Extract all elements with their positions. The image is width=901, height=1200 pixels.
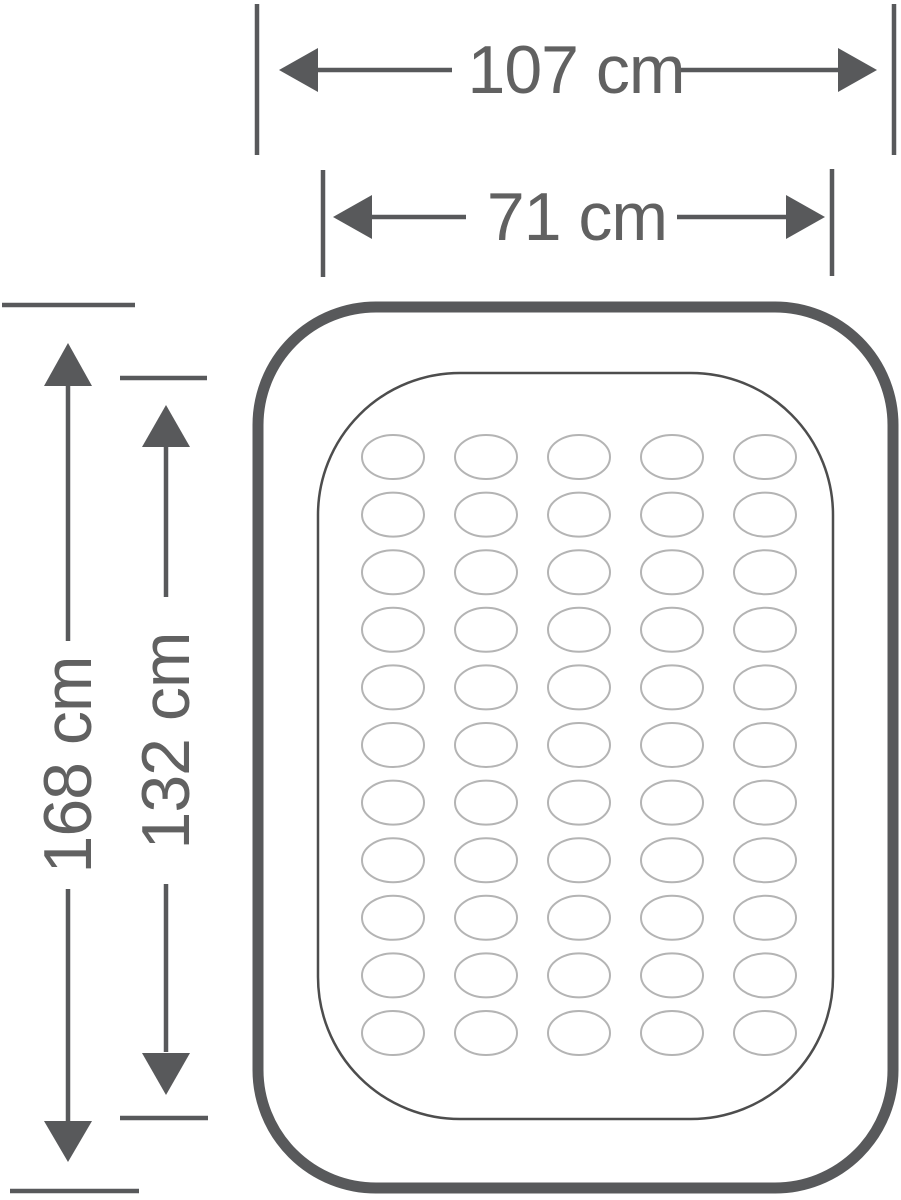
inner-width-dimension: 71 cm <box>323 169 832 277</box>
down-arrowhead-icon <box>44 1121 92 1162</box>
up-arrowhead-icon <box>44 343 92 386</box>
inner-length-dimension: 132 cm <box>120 378 208 1118</box>
right-arrowhead-icon <box>786 195 825 239</box>
outer-length-dimension: 168 cm <box>2 305 139 1191</box>
inner-length-label: 132 cm <box>128 633 204 850</box>
left-arrowhead-icon <box>333 195 372 239</box>
mattress-dimension-diagram: 107 cm 71 cm 168 cm <box>0 0 901 1200</box>
up-arrowhead-icon <box>142 405 190 447</box>
outer-width-dimension: 107 cm <box>257 4 894 155</box>
right-arrowhead-icon <box>838 48 877 92</box>
outer-length-label: 168 cm <box>30 657 106 874</box>
mattress-top-view <box>258 307 893 1188</box>
left-arrowhead-icon <box>279 48 318 92</box>
inner-width-label: 71 cm <box>487 179 667 255</box>
diagram-svg: 107 cm 71 cm 168 cm <box>0 0 901 1200</box>
down-arrowhead-icon <box>142 1053 190 1095</box>
outer-width-label: 107 cm <box>468 32 685 108</box>
